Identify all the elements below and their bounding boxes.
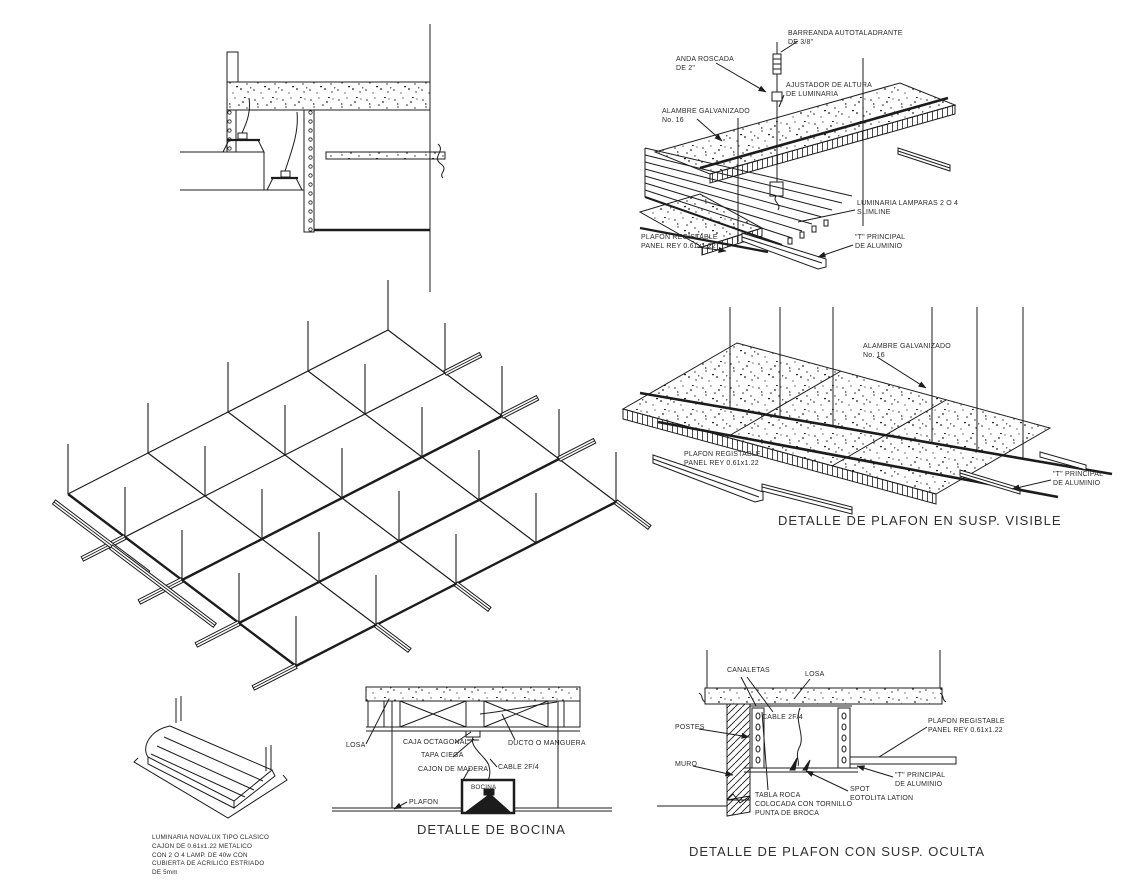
- label-t-principal-oculta: "T" PRINCIPAL DE ALUMINIO: [895, 771, 945, 789]
- label-plafon-bocina: PLAFON: [409, 798, 438, 807]
- label-caja-octagonal: CAJA OCTAGONAL: [403, 738, 469, 747]
- title-susp-visible: DETALLE DE PLAFON EN SUSP. VISIBLE: [778, 513, 1062, 528]
- label-bocina: BOCINA: [471, 784, 496, 793]
- label-muro: MURO: [675, 760, 697, 769]
- grid-runner: [445, 355, 481, 373]
- drawing-sheet: BARREANDA AUTOTALADRANTE DE 3/8" ANDA RO…: [0, 0, 1128, 896]
- label-cable-bocina: CABLE 2F/4: [498, 763, 539, 772]
- luminaria-isometric: [134, 696, 287, 818]
- grid-runner: [111, 547, 215, 625]
- label-cable-oculta: CABLE 2F/4: [762, 713, 803, 722]
- grid-runner: [376, 625, 410, 650]
- drawing-canvas: [0, 0, 1128, 896]
- title-bocina: DETALLE DE BOCINA: [417, 822, 566, 837]
- label-luminaria-nota: LUMINARIA NOVALUX TIPO CLASICO CAJON DE …: [152, 834, 269, 878]
- grid-runner: [196, 623, 239, 645]
- label-postes: POSTES: [675, 723, 705, 732]
- label-t-principal-top: "T" PRINCIPAL DE ALUMINIO: [855, 233, 905, 251]
- label-plafon-top: PLAFON REGISTABLE PANEL REY 0.61x1.22: [641, 233, 718, 251]
- title-susp-oculta: DETALLE DE PLAFON CON SUSP. OCULTA: [689, 844, 985, 859]
- grid-runner: [253, 666, 296, 688]
- detail-bocina: [332, 687, 612, 813]
- label-cajon-madera: CAJON DE MADERA: [418, 765, 488, 774]
- label-losa-bocina: LOSA: [346, 741, 365, 750]
- iso-ceiling-grid: [52, 280, 651, 690]
- detail-susp-visible: [623, 307, 1112, 514]
- section-detail-soffit: [180, 24, 445, 292]
- grid-runner: [616, 502, 650, 527]
- grid-runner: [502, 398, 538, 416]
- label-t-principal-mid: "T" PRINCIPAL DE ALUMINIO: [1053, 470, 1103, 488]
- label-barrena: BARREANDA AUTOTALADRANTE DE 3/8": [788, 29, 903, 47]
- label-luminaria-lamparas: LUMINARIA LAMPARAS 2 O 4 SLIMLINE: [857, 199, 958, 217]
- label-alambre-mid: ALAMBRE GALVANIZADO No. 16: [863, 342, 951, 360]
- label-ajustador: AJUSTADOR DE ALTURA DE LUMINARIA: [786, 81, 872, 99]
- label-tabla-roca: TABLA ROCA COLOCADA CON TORNILLO PUNTA D…: [755, 791, 852, 818]
- label-losa-oculta: LOSA: [805, 670, 824, 679]
- label-ducto: DUCTO O MANGUERA: [508, 739, 586, 748]
- grid-runner: [559, 441, 595, 459]
- label-canaletas: CANALETAS: [727, 666, 770, 675]
- label-tapa-ciega: TAPA CIEGA: [421, 751, 464, 760]
- label-alambre-top: ALAMBRE GALVANIZADO No. 16: [662, 107, 750, 125]
- label-plafon-oculta: PLAFON REGISTABLE PANEL REY 0.61x1.22: [928, 717, 1005, 735]
- grid-runner: [456, 584, 490, 609]
- label-anda-roscada: ANDA ROSCADA DE 2": [676, 55, 734, 73]
- label-plafon-mid: PLAFON REGISTABLE PANEL REY 0.61x1.22: [684, 450, 761, 468]
